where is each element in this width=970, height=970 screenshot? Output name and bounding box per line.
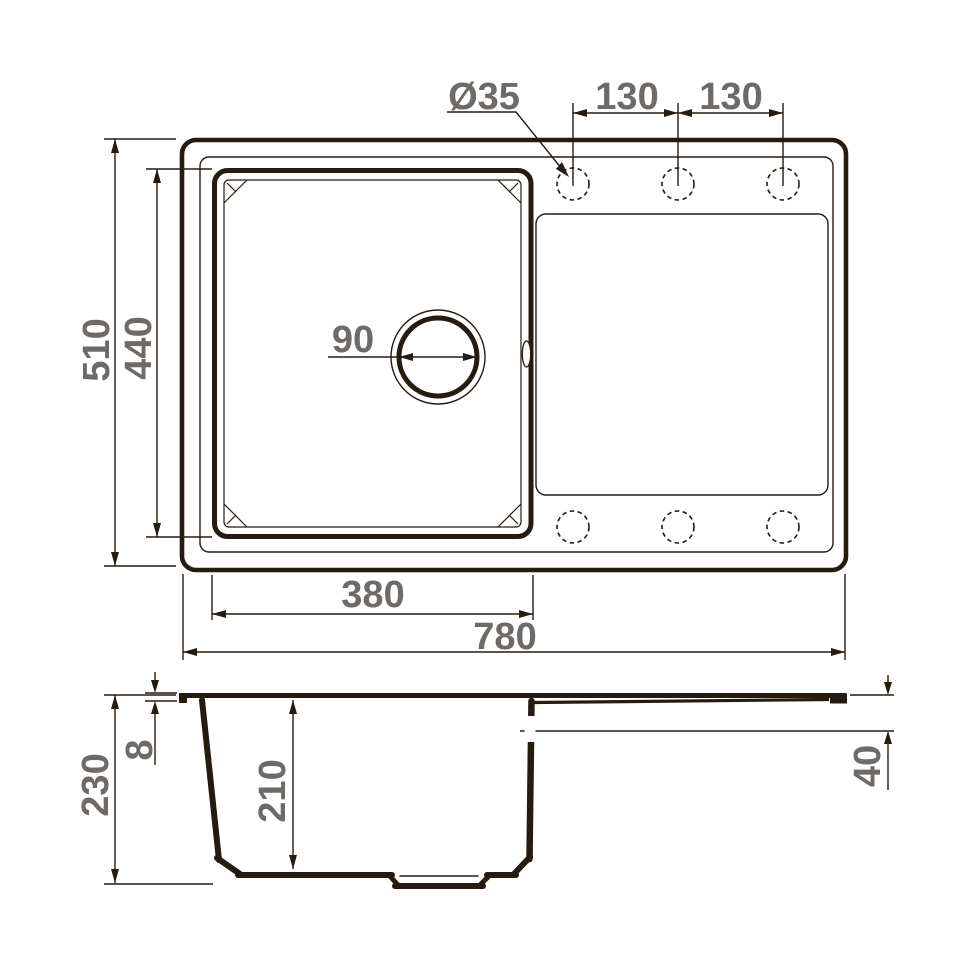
label-hole-diameter: Ø35 (448, 76, 520, 118)
drainboard-surface (534, 700, 829, 703)
faucet-hole-bottom-2 (662, 511, 694, 543)
sink-outline-top (182, 140, 846, 570)
label-bowl-inner-depth: 210 (252, 759, 294, 822)
faucet-hole-bottom-3 (767, 511, 799, 543)
faucet-hole-bottom-1 (557, 511, 589, 543)
label-drainboard-drop: 40 (847, 745, 889, 787)
drainboard-outline (536, 214, 828, 495)
overflow-slot-side (525, 716, 536, 742)
overflow-slot-top (522, 341, 530, 367)
side-view-dimension-lines (104, 672, 894, 884)
label-overall-width: 780 (473, 616, 536, 658)
rim-right-end (830, 694, 847, 704)
label-overall-depth: 510 (76, 318, 118, 381)
label-hole-spacing-left: 130 (595, 76, 658, 118)
bowl-left-wall (202, 700, 219, 860)
rim-left-lip (179, 693, 187, 703)
label-rim-thickness: 8 (119, 739, 161, 760)
label-overall-height: 230 (75, 753, 117, 816)
side-view: 230 8 210 40 (75, 672, 894, 886)
drawing-canvas: Ø35 130 130 510 440 90 380 780 (0, 0, 970, 970)
faucet-holes (557, 168, 799, 543)
label-drain-diameter: 90 (332, 319, 374, 361)
inner-rim-line (200, 157, 833, 552)
label-bowl-width: 380 (341, 574, 404, 616)
label-hole-spacing-right: 130 (699, 76, 762, 118)
label-bowl-outer-depth: 440 (118, 316, 160, 379)
top-view: Ø35 130 130 510 440 90 380 780 (76, 76, 846, 660)
sink-technical-drawing: Ø35 130 130 510 440 90 380 780 (0, 0, 970, 970)
